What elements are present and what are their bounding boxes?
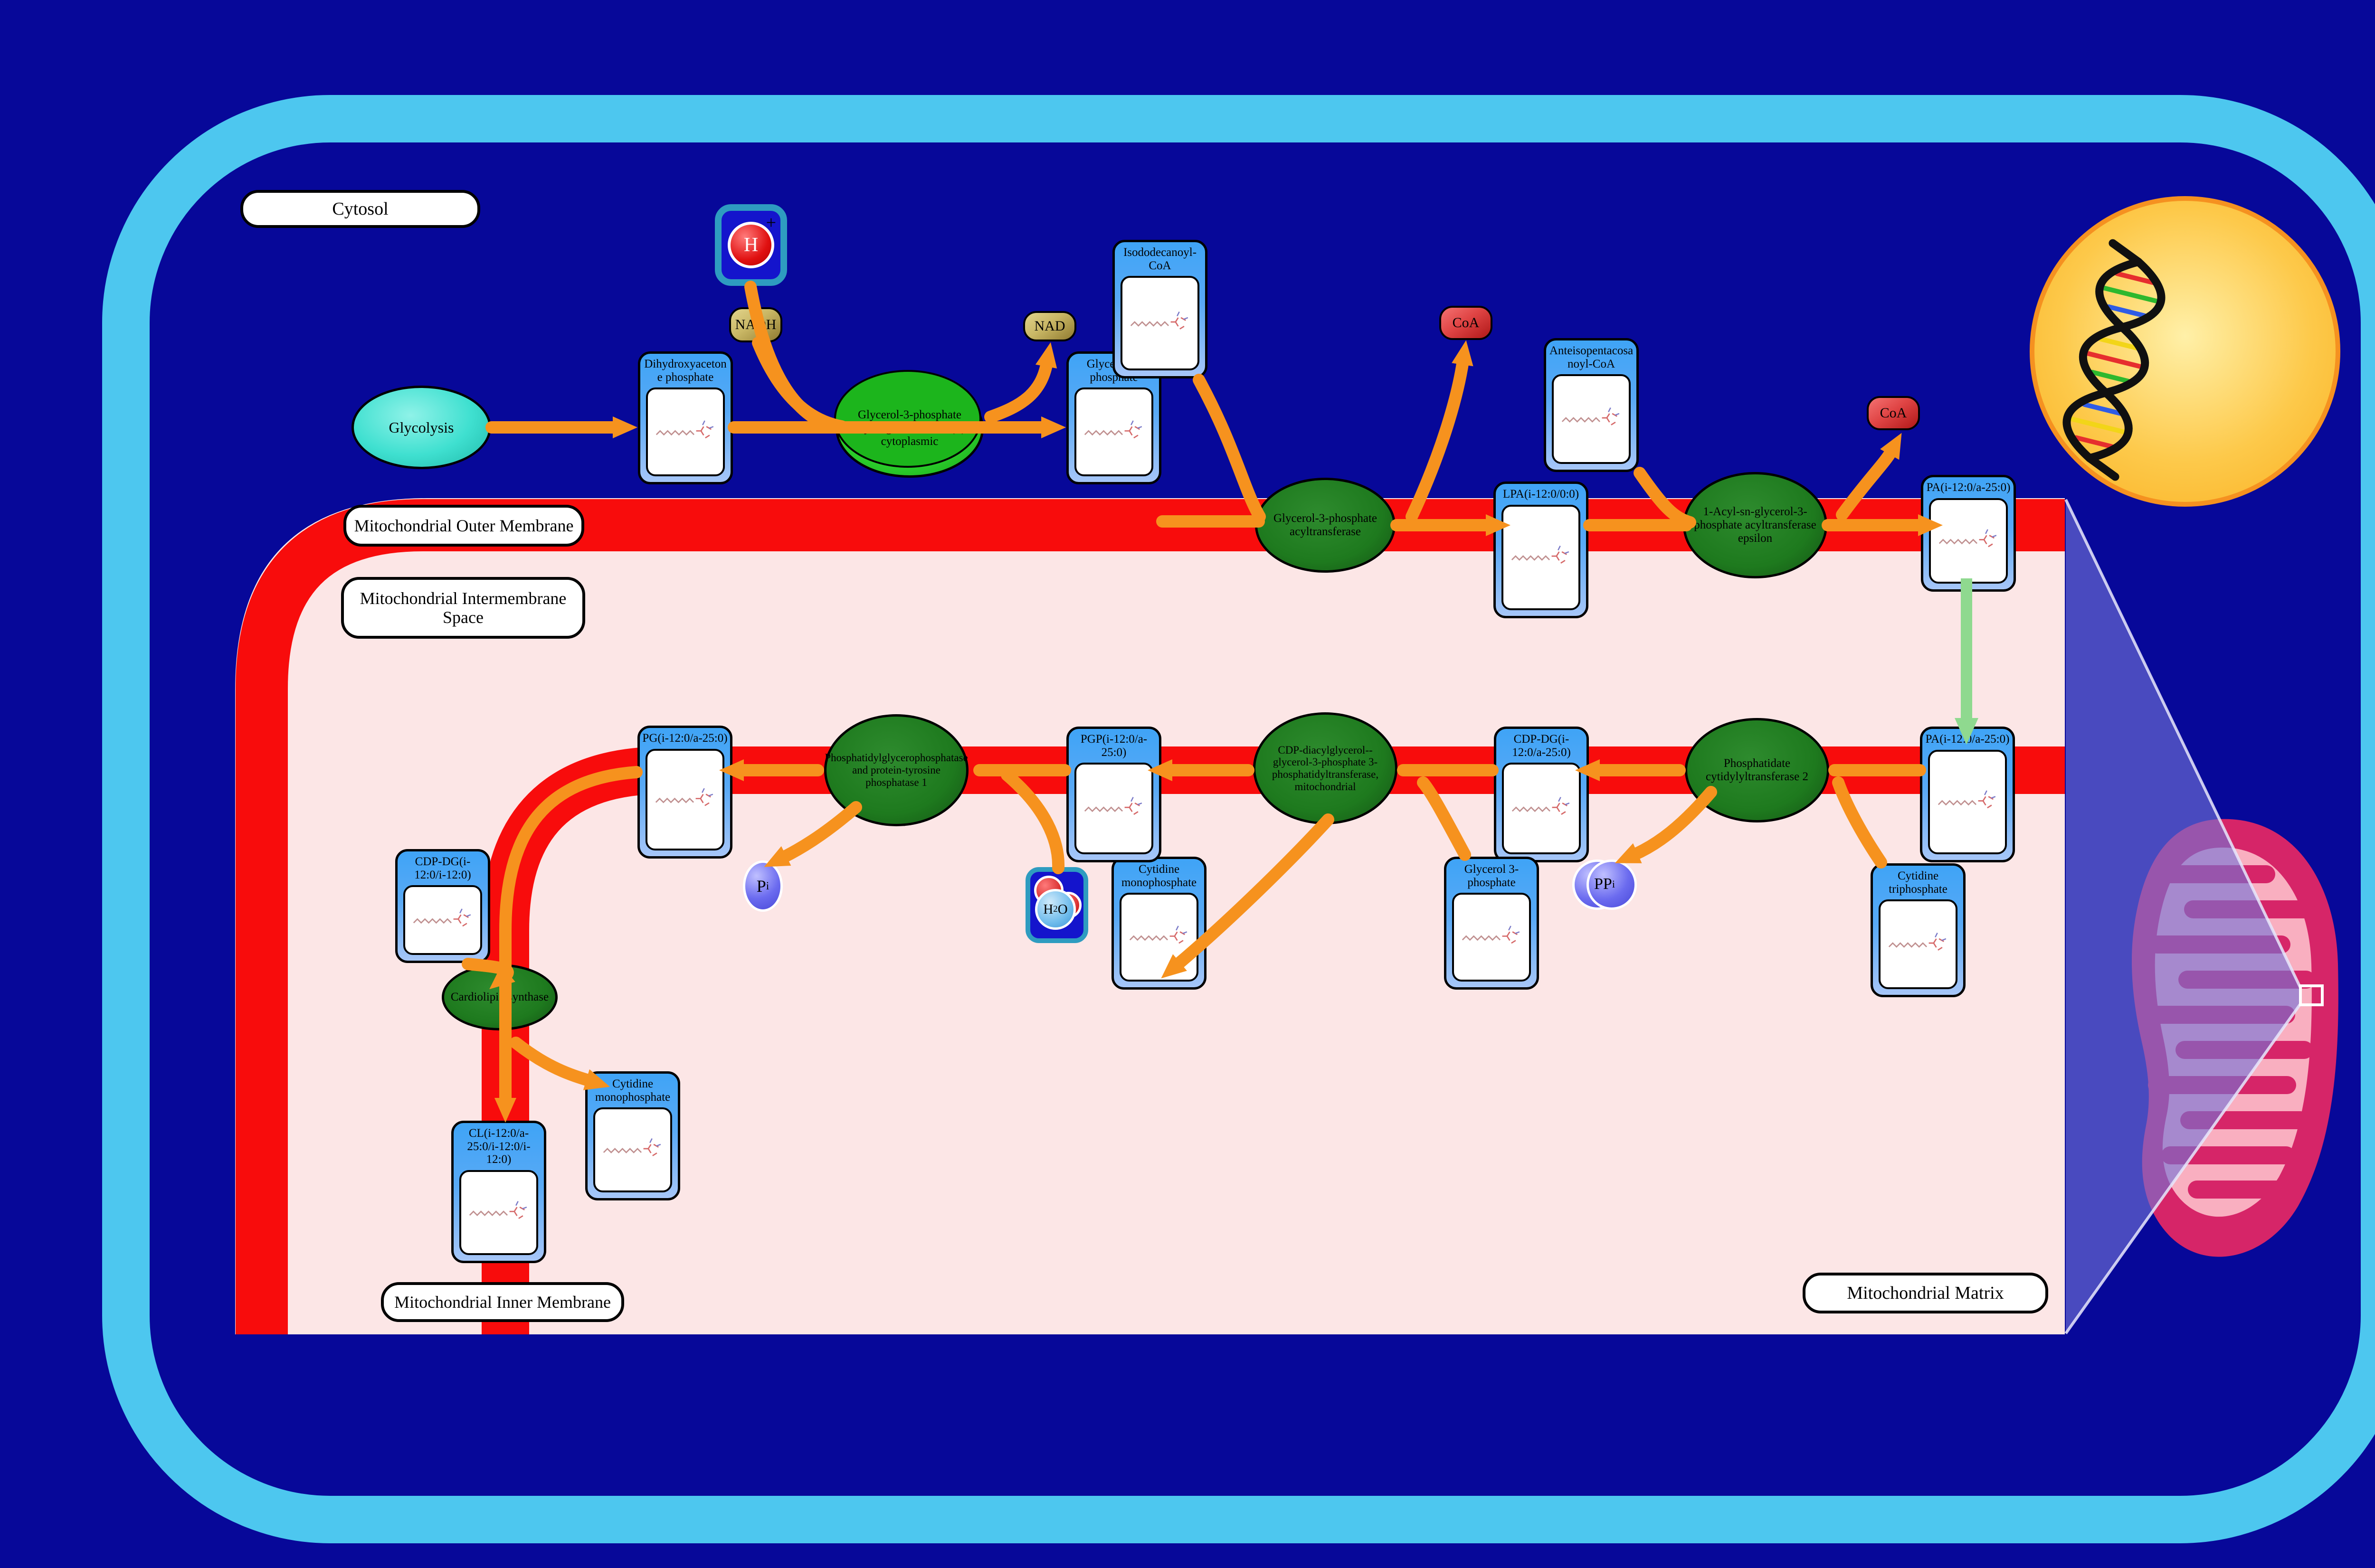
label-text: Mitochondrial Outer Membrane (354, 516, 574, 535)
chemical-structure-icon (1502, 763, 1581, 854)
compartment-label-inner-membrane: Mitochondrial Inner Membrane (381, 1282, 624, 1322)
metabolite-label: Anteisopentacosanoyl-CoA (1546, 340, 1636, 371)
cofactor-nad[interactable]: NAD (1023, 311, 1076, 341)
cofactor-label: NADH (735, 317, 777, 333)
chemical-structure-icon (1928, 750, 2007, 855)
metabolite-label: Cytidine monophosphate (1114, 859, 1204, 890)
metabolite-label: Isododecanoyl-CoA (1115, 242, 1205, 273)
chemical-structure-icon (646, 387, 725, 476)
base-graphics (0, 0, 2375, 1568)
proton-charge: + (766, 212, 776, 233)
metabolite-label: PG(i-12:0/a-25:0) (640, 728, 730, 746)
chemical-structure-icon (1929, 498, 2008, 584)
metabolite-label: LPA(i-12:0/0:0) (1496, 484, 1586, 502)
metabolite-cmp-lower[interactable]: Cytidine monophosphate (585, 1071, 680, 1200)
pyrophosphate-symbol: PP (1594, 875, 1612, 893)
enzyme-gpd1[interactable]: Glycerol-3-phosphate dehydrogenase [NAD(… (836, 379, 984, 478)
chemical-structure-icon (593, 1107, 672, 1192)
chemical-structure-icon (459, 1170, 538, 1256)
label-text: Mitochondrial Inner Membrane (394, 1293, 611, 1312)
metabolite-label: CDP-DG(i-12:0/a-25:0) (1496, 729, 1586, 760)
proton-circle: H + (728, 222, 774, 268)
chemical-structure-icon (646, 749, 724, 851)
metabolite-label: Glycerol 3-phosphate (1446, 859, 1537, 890)
pathway-canvas: Cytosol Mitochondrial Outer Membrane Mit… (0, 0, 2375, 1568)
water-h: H (1043, 902, 1053, 917)
chemical-structure-icon (1120, 893, 1198, 982)
enzyme-gpat[interactable]: Glycerol-3-phosphate acyltransferase (1255, 478, 1396, 573)
chemical-structure-icon (1074, 763, 1153, 854)
cofactor-label: CoA (1453, 315, 1480, 331)
chemical-structure-icon (1074, 387, 1153, 476)
cofactor-label: NAD (1035, 318, 1065, 334)
pyrophosphate-sub: i (1612, 878, 1615, 890)
metabolite-label: PA(i-12:0/a-25:0) (1922, 729, 2013, 747)
label-text: Mitochondrial Intermembrane Space (355, 589, 571, 627)
enzyme-label: CDP-diacylglycerol--glycerol-3-phosphate… (1260, 744, 1390, 793)
metabolite-label: Dihydroxyacetone phosphate (640, 354, 731, 385)
metabolite-label: Cytidine monophosphate (588, 1074, 678, 1105)
proton-icon[interactable]: H + (715, 204, 787, 286)
metabolite-isododecanoyl-coa[interactable]: Isododecanoyl-CoA (1112, 240, 1207, 378)
oxygen-atom-icon: H2O (1035, 889, 1076, 930)
metabolite-label: PGP(i-12:0/a-25:0) (1069, 729, 1159, 760)
compartment-label-cytosol: Cytosol (240, 190, 480, 228)
chemical-structure-icon (1879, 899, 1957, 989)
metabolite-cdp-dg-2[interactable]: CDP-DG(i-12:0/i-12:0) (395, 849, 490, 963)
metabolite-label: CL(i-12:0/a-25:0/i-12:0/i-12:0) (454, 1123, 544, 1167)
metabolite-label: Cytidine triphosphate (1873, 866, 1963, 897)
metabolite-label: CDP-DG(i-12:0/i-12:0) (398, 851, 488, 882)
enzyme-ptpmt1[interactable]: Phosphatidylglycerophosphatase and prote… (824, 714, 969, 826)
metabolite-ctp[interactable]: Cytidine triphosphate (1871, 863, 1966, 997)
enzyme-pgs1[interactable]: CDP-diacylglycerol--glycerol-3-phosphate… (1253, 712, 1397, 824)
process-label: Glycolysis (389, 419, 454, 436)
metabolite-label: PA(i-12:0/a-25:0) (1923, 477, 2014, 495)
enzyme-label: Phosphatidate cytidylyltransferase 2 (1692, 757, 1822, 784)
chemical-structure-icon (1501, 505, 1580, 611)
enzyme-label: Glycerol-3-phosphate acyltransferase (1262, 512, 1388, 538)
enzyme-label: Phosphatidylglycerophosphatase and prote… (825, 752, 968, 788)
enzyme-cds2[interactable]: Phosphatidate cytidylyltransferase 2 (1685, 718, 1829, 822)
metabolite-pgp[interactable]: PGP(i-12:0/a-25:0) (1066, 727, 1161, 862)
metabolite-anteisopentacosanoyl-coa[interactable]: Anteisopentacosanoyl-CoA (1544, 338, 1639, 472)
compartment-label-intermembrane-space: Mitochondrial Intermembrane Space (341, 577, 585, 639)
enzyme-label: Cardiolipin synthase (451, 991, 549, 1004)
compartment-label-matrix: Mitochondrial Matrix (1803, 1273, 2048, 1313)
enzyme-label: 1-Acyl-sn-glycerol-3-phosphate acyltrans… (1690, 505, 1820, 545)
pyrophosphate-icon[interactable]: PPi (1572, 858, 1637, 911)
metabolite-pg[interactable]: PG(i-12:0/a-25:0) (637, 726, 732, 859)
process-glycolysis[interactable]: Glycolysis (351, 386, 491, 469)
compartment-label-outer-membrane: Mitochondrial Outer Membrane (343, 505, 584, 547)
chemical-structure-icon (1552, 374, 1631, 464)
chemical-structure-icon (1121, 276, 1199, 370)
water-o: O (1058, 902, 1068, 917)
metabolite-pa-inner[interactable]: PA(i-12:0/a-25:0) (1920, 727, 2015, 862)
label-text: Mitochondrial Matrix (1847, 1283, 2004, 1304)
enzyme-agpat[interactable]: 1-Acyl-sn-glycerol-3-phosphate acyltrans… (1683, 472, 1827, 578)
enzyme-label: Glycerol-3-phosphate dehydrogenase [NAD(… (843, 408, 977, 448)
metabolite-cdp-dg[interactable]: CDP-DG(i-12:0/a-25:0) (1494, 727, 1589, 862)
phosphate-sub: i (766, 880, 769, 893)
cofactor-coa-2[interactable]: CoA (1867, 396, 1920, 430)
phosphate-icon[interactable]: Pi (743, 860, 783, 912)
nucleus-icon (2032, 198, 2338, 504)
enzyme-crls1[interactable]: Cardiolipin synthase (442, 964, 558, 1030)
metabolite-pa-outer[interactable]: PA(i-12:0/a-25:0) (1921, 475, 2016, 592)
phosphate-symbol: P (757, 876, 766, 896)
cofactor-label: CoA (1880, 405, 1907, 421)
label-text: Cytosol (332, 199, 388, 219)
metabolite-cmp-upper[interactable]: Cytidine monophosphate (1111, 857, 1206, 990)
metabolite-lpa[interactable]: LPA(i-12:0/0:0) (1493, 482, 1588, 618)
cofactor-coa-1[interactable]: CoA (1439, 306, 1492, 340)
water-2: 2 (1053, 904, 1057, 915)
chemical-structure-icon (403, 885, 482, 955)
cofactor-nadh[interactable]: NADH (729, 307, 782, 342)
proton-symbol: H (744, 234, 758, 256)
chemical-structure-icon (1452, 893, 1531, 982)
water-icon[interactable]: H2O (1026, 867, 1088, 943)
metabolite-cardiolipin[interactable]: CL(i-12:0/a-25:0/i-12:0/i-12:0) (451, 1121, 546, 1263)
metabolite-glycerol-3-phosphate-matrix[interactable]: Glycerol 3-phosphate (1444, 857, 1539, 990)
metabolite-dhap[interactable]: Dihydroxyacetone phosphate (638, 351, 733, 484)
